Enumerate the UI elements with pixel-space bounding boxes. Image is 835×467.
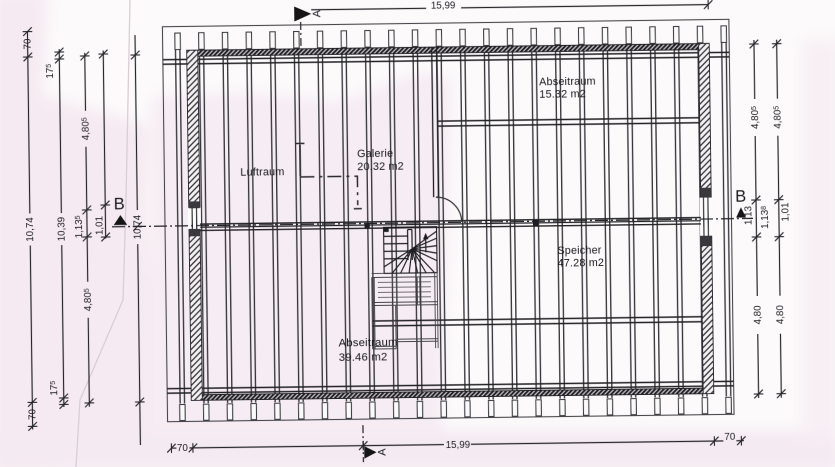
svg-text:70: 70 (23, 38, 34, 50)
svg-text:B: B (114, 195, 125, 213)
svg-text:A: A (311, 9, 323, 17)
svg-text:4,80: 4,80 (775, 305, 786, 325)
svg-text:1,01: 1,01 (94, 216, 105, 235)
svg-text:B: B (735, 188, 746, 206)
svg-text:Speicher: Speicher (557, 245, 602, 258)
svg-text:15,99: 15,99 (431, 1, 456, 12)
svg-text:Abseitraum: Abseitraum (338, 337, 397, 350)
svg-text:Luftraum: Luftraum (240, 166, 284, 179)
svg-text:4,80: 4,80 (752, 305, 763, 325)
svg-text:10,74: 10,74 (132, 214, 143, 239)
svg-text:47.28 m2: 47.28 m2 (557, 257, 604, 270)
svg-text:70: 70 (724, 432, 736, 443)
svg-text:1,13: 1,13 (743, 205, 754, 225)
svg-text:A: A (376, 448, 388, 456)
svg-text:15,99: 15,99 (446, 440, 471, 451)
svg-text:20.32 m2: 20.32 m2 (357, 161, 404, 174)
svg-text:15.32 m2: 15.32 m2 (539, 88, 586, 101)
svg-text:10,39: 10,39 (56, 217, 67, 242)
svg-text:70: 70 (27, 408, 38, 420)
svg-text:70: 70 (177, 443, 189, 454)
svg-text:10,74: 10,74 (25, 217, 36, 242)
svg-text:Abseitraum: Abseitraum (539, 76, 596, 89)
svg-text:1,01: 1,01 (780, 202, 791, 221)
svg-text:Galerie: Galerie (357, 148, 393, 160)
svg-text:39.46 m2: 39.46 m2 (339, 351, 388, 364)
